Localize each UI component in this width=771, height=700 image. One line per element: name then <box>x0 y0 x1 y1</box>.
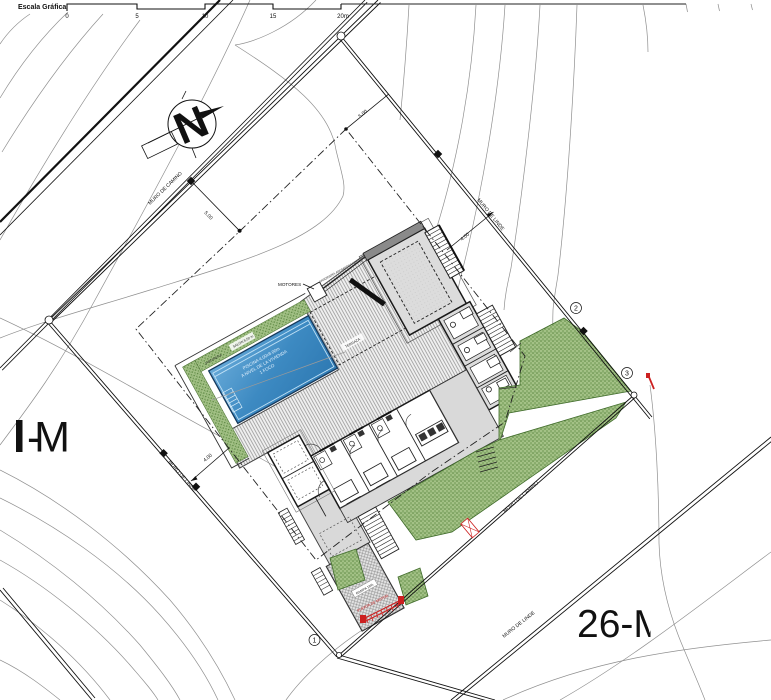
svg-text:-M: -M <box>27 414 70 462</box>
svg-text:1: 1 <box>313 638 317 645</box>
svg-text:15: 15 <box>270 14 277 20</box>
svg-text:20m: 20m <box>337 14 349 20</box>
svg-text:3: 3 <box>625 371 629 378</box>
svg-text:Escala Gráfica: Escala Gráfica <box>18 4 66 11</box>
svg-text:10: 10 <box>202 14 209 20</box>
svg-text:MOTORES: MOTORES <box>278 282 301 287</box>
svg-text:2: 2 <box>574 306 578 313</box>
